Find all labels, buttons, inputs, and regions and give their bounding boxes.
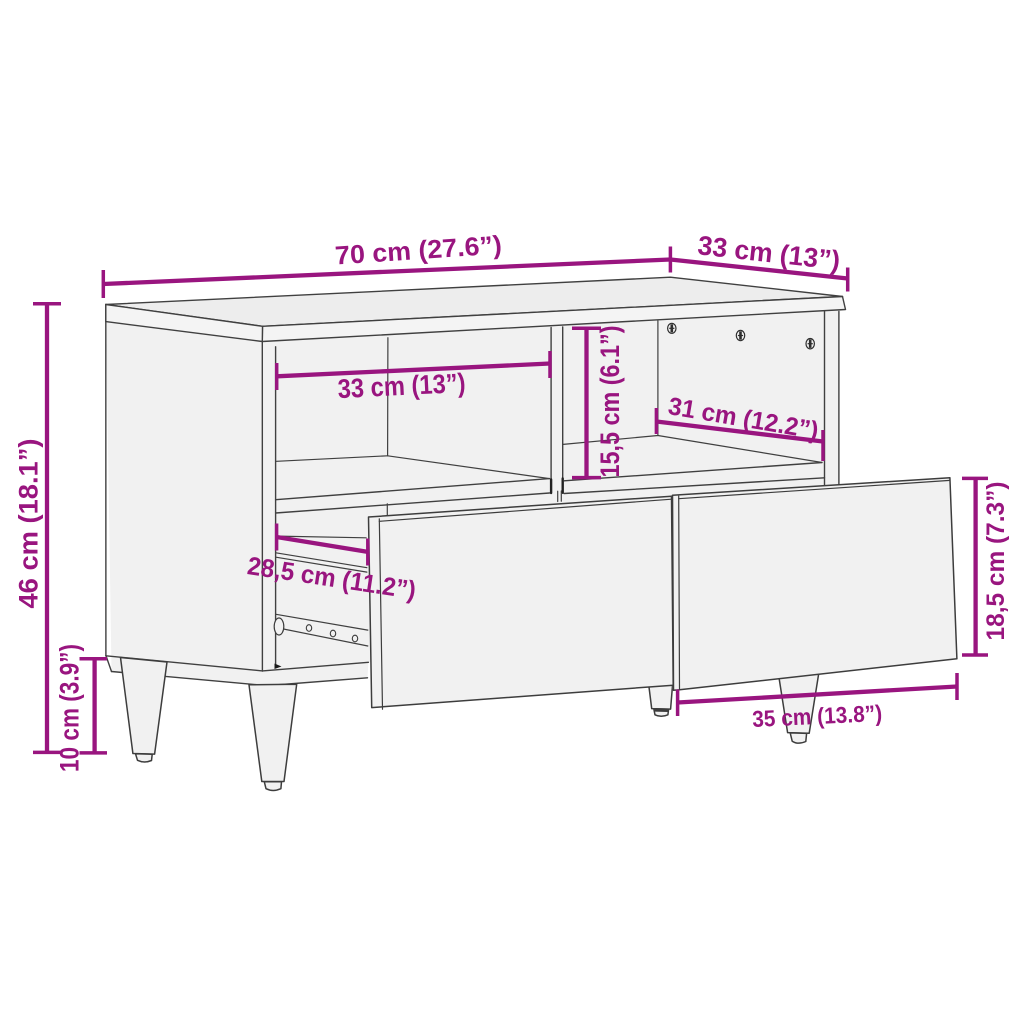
svg-text:33 cm (13”): 33 cm (13”) bbox=[337, 368, 466, 404]
svg-text:15,5 cm (6.1”): 15,5 cm (6.1”) bbox=[595, 326, 625, 478]
svg-text:10 cm (3.9”): 10 cm (3.9”) bbox=[55, 644, 85, 772]
svg-text:18,5 cm (7.3”): 18,5 cm (7.3”) bbox=[982, 482, 1010, 641]
svg-text:46 cm (18.1”): 46 cm (18.1”) bbox=[14, 439, 44, 609]
